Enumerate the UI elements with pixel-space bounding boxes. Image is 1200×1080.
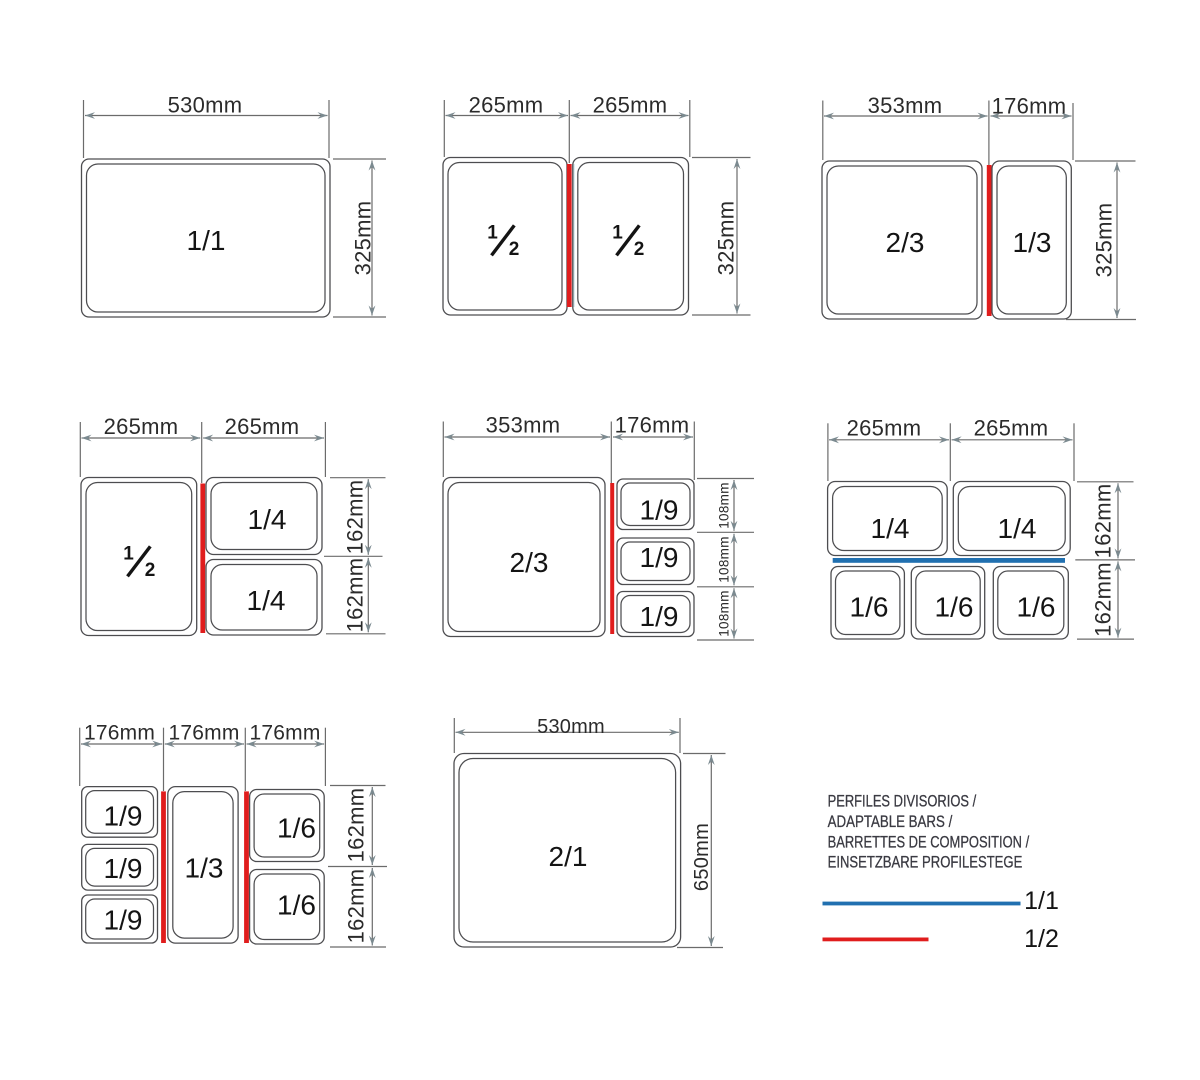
svg-text:176mm: 176mm bbox=[84, 722, 155, 745]
svg-text:162mm: 162mm bbox=[343, 869, 368, 944]
svg-text:1/4: 1/4 bbox=[248, 504, 287, 535]
svg-text:1/4: 1/4 bbox=[871, 513, 910, 544]
svg-text:PERFILES DIVISORIOS /: PERFILES DIVISORIOS / bbox=[828, 793, 977, 811]
svg-text:1/4: 1/4 bbox=[998, 513, 1037, 544]
svg-text:2: 2 bbox=[509, 239, 520, 260]
svg-text:1/3: 1/3 bbox=[185, 852, 224, 883]
svg-text:1/6: 1/6 bbox=[850, 591, 889, 622]
svg-text:1/6: 1/6 bbox=[1017, 591, 1056, 622]
svg-text:265mm: 265mm bbox=[847, 415, 922, 440]
svg-text:1: 1 bbox=[123, 544, 134, 565]
svg-text:2: 2 bbox=[145, 560, 156, 581]
svg-text:1/6: 1/6 bbox=[277, 812, 316, 843]
svg-text:325mm: 325mm bbox=[1091, 203, 1116, 278]
svg-text:1: 1 bbox=[612, 223, 623, 244]
svg-text:176mm: 176mm bbox=[615, 413, 690, 438]
svg-text:ADAPTABLE BARS /: ADAPTABLE BARS / bbox=[828, 813, 953, 831]
svg-text:2/3: 2/3 bbox=[886, 227, 925, 258]
svg-text:1/9: 1/9 bbox=[104, 853, 143, 884]
svg-text:1/3: 1/3 bbox=[1013, 227, 1052, 258]
svg-text:EINSETZBARE PROFILESTEGE: EINSETZBARE PROFILESTEGE bbox=[828, 854, 1023, 872]
svg-text:1/9: 1/9 bbox=[640, 542, 679, 573]
svg-text:1/9: 1/9 bbox=[640, 601, 679, 632]
svg-text:BARRETTES DE COMPOSITION /: BARRETTES DE COMPOSITION / bbox=[828, 833, 1030, 851]
svg-text:1/4: 1/4 bbox=[247, 585, 286, 616]
svg-text:108mm: 108mm bbox=[716, 590, 731, 637]
svg-text:265mm: 265mm bbox=[469, 93, 544, 118]
svg-text:1/6: 1/6 bbox=[277, 889, 316, 920]
svg-text:1: 1 bbox=[487, 223, 498, 244]
svg-text:265mm: 265mm bbox=[593, 93, 668, 118]
svg-text:1/9: 1/9 bbox=[104, 800, 143, 831]
svg-text:176mm: 176mm bbox=[249, 722, 320, 745]
svg-text:176mm: 176mm bbox=[992, 94, 1067, 119]
svg-text:176mm: 176mm bbox=[168, 722, 239, 745]
svg-text:1/9: 1/9 bbox=[104, 904, 143, 935]
svg-text:1/2: 1/2 bbox=[1024, 925, 1059, 953]
svg-text:265mm: 265mm bbox=[104, 414, 179, 439]
svg-text:162mm: 162mm bbox=[1090, 562, 1115, 637]
svg-text:2: 2 bbox=[634, 239, 645, 260]
svg-text:108mm: 108mm bbox=[716, 482, 731, 529]
svg-text:265mm: 265mm bbox=[225, 414, 300, 439]
svg-text:2/3: 2/3 bbox=[510, 547, 549, 578]
svg-text:353mm: 353mm bbox=[486, 413, 561, 438]
svg-text:2/1: 2/1 bbox=[549, 841, 588, 872]
svg-text:325mm: 325mm bbox=[350, 201, 375, 276]
svg-text:162mm: 162mm bbox=[1090, 483, 1115, 558]
svg-text:1/6: 1/6 bbox=[935, 591, 974, 622]
svg-text:1/1: 1/1 bbox=[1024, 887, 1059, 915]
svg-text:162mm: 162mm bbox=[342, 480, 367, 555]
svg-text:108mm: 108mm bbox=[716, 536, 731, 583]
svg-text:650mm: 650mm bbox=[691, 823, 713, 891]
svg-text:265mm: 265mm bbox=[974, 415, 1049, 440]
svg-text:325mm: 325mm bbox=[713, 201, 738, 276]
svg-text:530mm: 530mm bbox=[168, 93, 243, 118]
svg-text:530mm: 530mm bbox=[537, 716, 605, 738]
svg-text:1/9: 1/9 bbox=[640, 494, 679, 525]
svg-text:1/1: 1/1 bbox=[187, 225, 226, 256]
svg-text:353mm: 353mm bbox=[868, 93, 943, 118]
svg-text:162mm: 162mm bbox=[342, 558, 367, 633]
svg-text:162mm: 162mm bbox=[343, 788, 368, 863]
